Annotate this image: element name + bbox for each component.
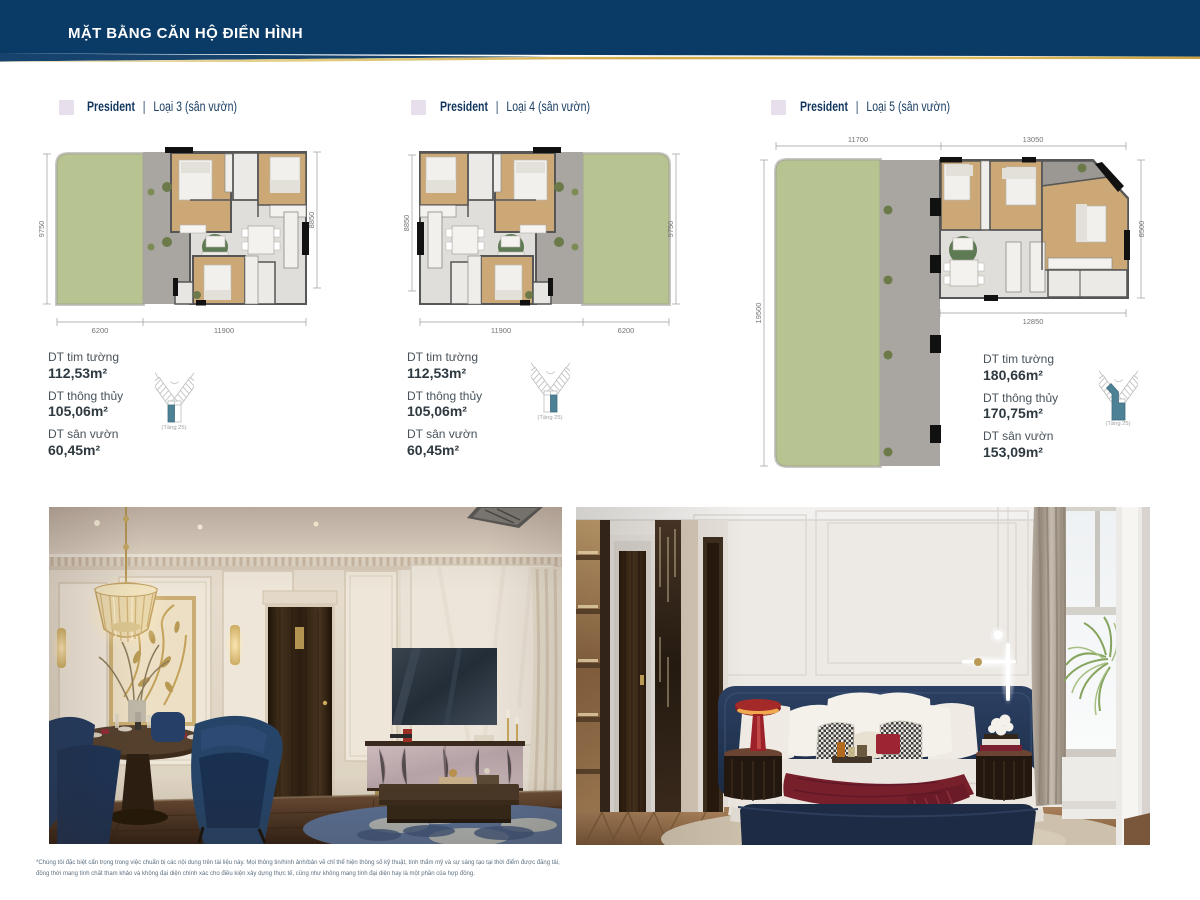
- svg-text:6200: 6200: [618, 326, 635, 335]
- svg-text:8850: 8850: [402, 215, 411, 232]
- svg-text:8850: 8850: [307, 212, 316, 229]
- svg-text:8500: 8500: [1137, 221, 1146, 238]
- svg-text:13050: 13050: [1023, 135, 1044, 144]
- svg-text:9750: 9750: [37, 221, 46, 238]
- svg-text:9750: 9750: [666, 221, 675, 238]
- svg-text:12850: 12850: [1023, 317, 1044, 326]
- svg-text:11900: 11900: [491, 326, 511, 335]
- svg-text:11700: 11700: [848, 135, 868, 144]
- svg-text:11900: 11900: [214, 326, 234, 335]
- svg-text:6200: 6200: [92, 326, 109, 335]
- svg-text:19500: 19500: [754, 303, 763, 324]
